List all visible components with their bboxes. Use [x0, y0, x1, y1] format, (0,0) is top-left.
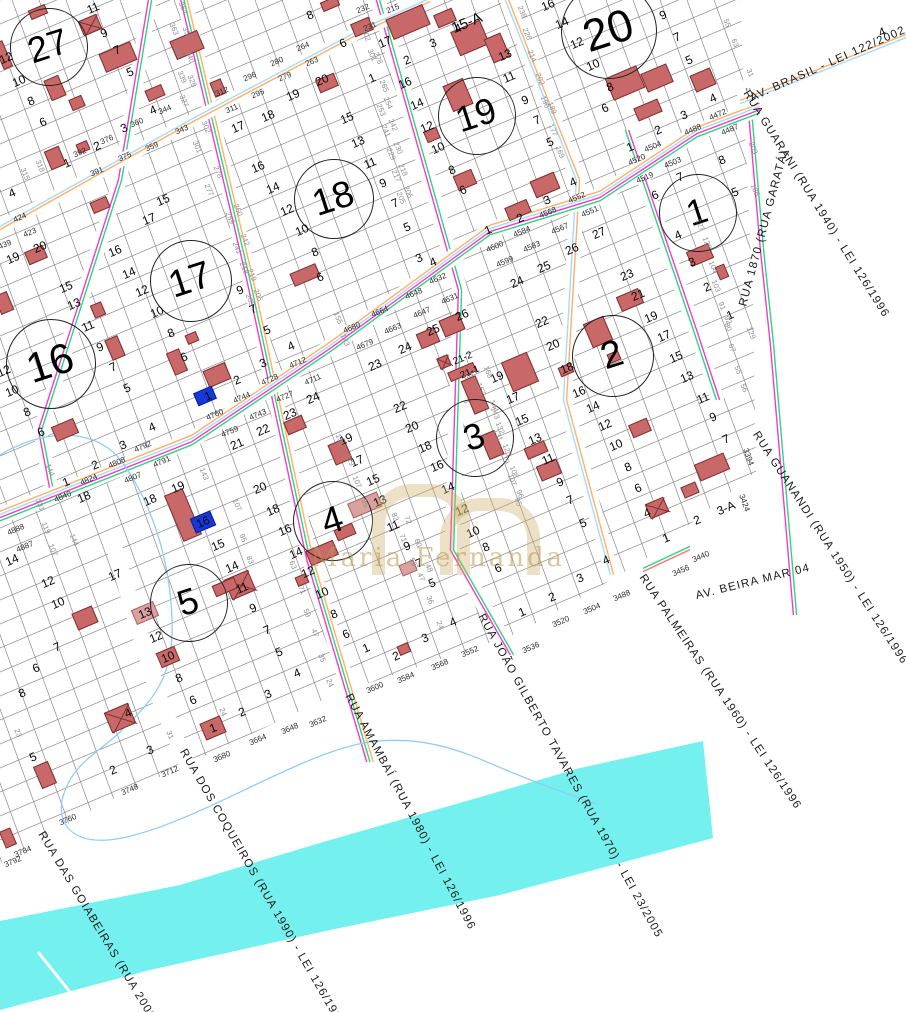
- address-number: 4663: [383, 322, 403, 336]
- lot-number: 16: [397, 75, 414, 91]
- chainage-number: 55: [733, 365, 743, 376]
- address-number: 264: [295, 41, 310, 54]
- lot-number: 4: [448, 615, 459, 629]
- chainage-number: 168: [482, 365, 494, 379]
- building: [68, 95, 86, 112]
- building: [680, 481, 699, 498]
- address-number: 3456: [671, 564, 691, 578]
- lot-number: 4: [147, 420, 158, 434]
- lot-number: 27: [591, 225, 608, 241]
- chainage-number: 104: [707, 260, 719, 274]
- address-number: 4632: [428, 272, 448, 286]
- lot-number: 20: [252, 480, 269, 496]
- chainage-number: 144: [68, 533, 80, 547]
- lot-number: 5: [125, 65, 136, 79]
- lot-number: 19: [5, 250, 22, 266]
- chainage-number: 129: [745, 326, 757, 340]
- lot-number: 12: [134, 283, 151, 299]
- chainage-number: 155: [332, 311, 344, 325]
- chainage-number: 83: [245, 555, 255, 566]
- lot-number: 7: [52, 640, 63, 654]
- building: [633, 98, 662, 121]
- address-number: 3394: [741, 447, 755, 466]
- address-number: 3440: [691, 550, 711, 564]
- building: [185, 331, 200, 345]
- building: [628, 418, 652, 439]
- lot-number: 6: [31, 661, 42, 675]
- lot-number: 23: [367, 357, 384, 373]
- lot-number: 11: [501, 69, 517, 85]
- address-number: 4664: [370, 305, 390, 319]
- chainage-number: 238: [516, 5, 528, 19]
- lot-number: 7: [721, 432, 732, 446]
- address-number: 392: [72, 147, 87, 160]
- lot-number: 21: [229, 436, 246, 452]
- address-number: 4584: [512, 225, 532, 239]
- address-number: 4824: [79, 473, 99, 487]
- lot-number: 6: [650, 188, 661, 202]
- lot-number: 2: [402, 53, 413, 67]
- lot-number: 2: [547, 590, 558, 604]
- lot-number: 8: [305, 8, 316, 22]
- lot-number: 22: [392, 399, 409, 415]
- chainage-number: 328: [186, 74, 198, 88]
- lot-number: 9: [99, 26, 110, 40]
- lot-number: 24: [509, 274, 526, 290]
- chainage-number: 302: [200, 120, 212, 134]
- lot-number: 14: [265, 180, 282, 196]
- address-number: 360: [129, 117, 144, 130]
- address-number: 439: [0, 239, 13, 252]
- lot-number: 7: [532, 113, 543, 127]
- street-label: RUA DOS COQUEIROS (RUA 1990) - LEI 126/1…: [177, 747, 347, 1012]
- lot-number: 17: [230, 119, 247, 135]
- lot-number: 6: [315, 270, 326, 284]
- lot-number: 8: [166, 326, 177, 340]
- lot-number: 17: [107, 567, 124, 583]
- address-number: 391: [89, 166, 104, 179]
- lot-number: 1: [361, 641, 372, 655]
- address-number: 311: [225, 103, 240, 115]
- address-number: 279: [277, 71, 292, 84]
- lot-number: 2: [237, 705, 248, 719]
- chainage-number: 144: [44, 463, 56, 477]
- lot-number: 23: [619, 267, 636, 283]
- address-number: 4519: [635, 171, 655, 185]
- lot-number: 17: [656, 328, 673, 344]
- crossed-building: [436, 354, 452, 370]
- chainage-number: 265: [378, 79, 390, 93]
- lot-number: 11: [85, 0, 101, 16]
- lot-number: 14: [121, 265, 138, 281]
- lot-number: 5: [274, 645, 285, 659]
- lot-number: 10: [430, 140, 447, 156]
- street-label: RUA DAS GOIABEIRAS (RUA 2000): [36, 829, 161, 1012]
- lot-number: 16: [540, 0, 557, 13]
- lot-number: 3: [258, 356, 269, 370]
- address-number: 295: [250, 88, 265, 101]
- address-number: 4887: [15, 540, 35, 554]
- building: [90, 301, 107, 319]
- lot-number: 15: [514, 412, 531, 428]
- address-number: 3600: [365, 681, 385, 695]
- building: [144, 84, 165, 102]
- lot-number: 3: [263, 687, 274, 701]
- lot-number: 9: [378, 176, 389, 190]
- building: [689, 67, 716, 92]
- address-number: 3648: [280, 722, 300, 736]
- building: [33, 761, 57, 789]
- address-number: 4552: [567, 191, 587, 205]
- chainage-number: 301: [191, 140, 203, 154]
- chainage-number: 95: [238, 533, 248, 544]
- address-number: 4728: [260, 373, 280, 387]
- address-number: 376: [99, 134, 114, 147]
- address-number: 4647: [412, 306, 432, 320]
- lot-number: 2: [653, 123, 664, 137]
- lot-number: 3: [679, 108, 690, 122]
- lot-number: 5: [578, 516, 589, 530]
- lot-number: 13: [679, 369, 696, 385]
- address-number: 423: [22, 227, 37, 240]
- chainage-number: 71: [297, 585, 307, 596]
- street-label: RUA JOÃO GILBERTO TAVARES (RUA 1970) - L…: [475, 612, 664, 940]
- lot-number: 7: [108, 360, 119, 374]
- chainage-number: 31: [745, 68, 755, 79]
- lot-number: 18: [265, 502, 282, 518]
- building: [694, 452, 730, 481]
- lot-number: 12: [40, 574, 57, 590]
- lot-number: 16: [250, 159, 267, 175]
- chainage-number: 23: [13, 728, 23, 739]
- lot-number: 4: [292, 666, 303, 680]
- chainage-number: 107: [231, 498, 243, 512]
- lot-number: 15: [668, 349, 685, 365]
- chainage-number: 59: [302, 608, 312, 619]
- address-number: 4711: [304, 373, 323, 387]
- lot-number: 17: [377, 34, 394, 50]
- address-number: 232: [355, 3, 370, 16]
- chainage-number: 278: [372, 51, 384, 65]
- address-number: 4760: [205, 408, 225, 422]
- lot-number: 8: [174, 671, 185, 685]
- chainage-number: 107: [47, 543, 59, 557]
- address-number: 4808: [107, 456, 127, 470]
- chainage-number: 131: [34, 498, 46, 512]
- address-number: 4583: [522, 240, 542, 254]
- lot-number: 6: [341, 627, 352, 641]
- lot-number: 8: [447, 163, 458, 177]
- lot-number: 17: [505, 390, 522, 406]
- street-label: RUA GUANANDI (RUA 1950) - LEI 126/1996: [750, 429, 906, 666]
- lot-number: 7: [565, 493, 576, 507]
- lot-number: 19: [643, 309, 660, 325]
- chainage-number: 315: [19, 167, 31, 181]
- lot-number: 13: [66, 296, 83, 312]
- lot-number: 4: [601, 553, 612, 567]
- lot-number: 8: [329, 607, 340, 621]
- address-number: 4599: [495, 255, 515, 269]
- lot-number: 5: [262, 323, 273, 337]
- chainage-number: 24: [435, 620, 445, 631]
- address-number: 424: [12, 212, 27, 225]
- address-number: 4727: [275, 390, 295, 404]
- lot-number: 4: [7, 186, 18, 200]
- address-number: 3520: [551, 615, 571, 629]
- building: [51, 418, 79, 442]
- address-number: 4472: [708, 108, 728, 122]
- building: [320, 0, 340, 12]
- lot-number: 15: [365, 472, 382, 488]
- lot-number: 17: [141, 211, 158, 227]
- lot-number: 5: [427, 576, 438, 590]
- address-number: 4567: [550, 222, 570, 236]
- street-label: RUA PALMEIRAS (RUA 1960) - LEI 126/1996: [637, 572, 804, 811]
- building: [202, 362, 231, 388]
- lot-number: 22: [534, 314, 551, 330]
- street-label: RUA AMAMBAÍ (RUA 1980) - LEI 126/1996: [342, 692, 477, 932]
- chainage-number: 67: [727, 343, 737, 354]
- street-label: AV. BRASIL - LEI 122/2002: [748, 24, 906, 104]
- address-number: 4743: [248, 408, 268, 422]
- chainage-number: 169: [554, 145, 566, 159]
- chainage-number: 202: [534, 72, 546, 86]
- chainage-number: 277: [203, 183, 215, 197]
- building: [104, 335, 125, 361]
- lot-number: 8: [22, 405, 33, 419]
- lot-number: 10: [50, 595, 67, 611]
- lot-number: 13: [350, 134, 367, 150]
- watermark-text: Maria Fernanda: [311, 543, 565, 573]
- address-number: 3552: [460, 645, 480, 659]
- chainage-number: 189: [546, 101, 558, 115]
- chainage-number: 363: [168, 22, 180, 36]
- building: [0, 291, 14, 315]
- lot-number: 14: [585, 399, 602, 415]
- lot-number: 5: [402, 220, 413, 234]
- address-number: 4807: [123, 471, 143, 485]
- address-number: 3488: [612, 589, 632, 603]
- chainage-number: 55: [722, 18, 732, 29]
- address-number: 4648: [404, 287, 424, 301]
- address-number: 4631: [440, 292, 460, 306]
- lot-number: 7: [672, 30, 683, 44]
- lot-number: 20: [545, 337, 562, 353]
- lot-number: 2: [90, 458, 101, 472]
- address-number: 4792: [133, 440, 153, 454]
- address-number: 4679: [355, 338, 375, 352]
- lot-number: 11: [695, 390, 711, 406]
- chainage-number: 278: [212, 165, 224, 179]
- lot-number: 6: [338, 36, 349, 50]
- address-number: 3792: [3, 855, 23, 869]
- building: [501, 352, 539, 392]
- chainage-number: 47: [310, 628, 320, 639]
- lot-number: 4: [286, 339, 297, 353]
- address-number: 4791: [152, 455, 172, 469]
- lot-number: 3: [414, 251, 425, 265]
- lot-number: 19: [285, 87, 302, 103]
- chainage-number: 24: [325, 678, 335, 689]
- address-number: 359: [144, 141, 159, 154]
- address-number: 3568: [430, 658, 450, 672]
- lot-number: 9: [520, 93, 531, 107]
- lot-number: 1: [367, 71, 378, 85]
- chainage-number: 35: [317, 653, 327, 664]
- lot-number: 20: [404, 419, 421, 435]
- chainage-number: 218: [238, 261, 250, 275]
- address-number: 3680: [212, 750, 232, 764]
- lot-number: 3: [420, 631, 431, 645]
- chainage-number: 56: [739, 383, 749, 394]
- lot-number: 9: [95, 340, 106, 354]
- chainage-number: 327: [178, 94, 190, 108]
- lot-number: 8: [310, 245, 321, 259]
- lot-number: 12: [279, 202, 296, 218]
- lot-number: 3: [428, 36, 439, 50]
- lot-number: 15: [58, 279, 75, 295]
- chainage-number: 364: [177, 1, 189, 15]
- building: [71, 605, 98, 630]
- lot-number: 3: [118, 438, 129, 452]
- address-number: 3748: [120, 783, 140, 797]
- lot-number: 3: [145, 743, 156, 757]
- lot-number: 18: [142, 492, 159, 508]
- lot-number: 8: [623, 460, 634, 474]
- lot-number: 9: [248, 601, 259, 615]
- lot-number: 9: [658, 8, 669, 22]
- lot-number: 8: [717, 153, 728, 167]
- address-number: 4840: [53, 490, 73, 504]
- lot-number: 5: [684, 53, 695, 67]
- street-label: RUA 1870 (RUA GARATÁ): [737, 148, 790, 307]
- chainage-number: 36: [425, 595, 435, 606]
- lot-number: 5: [122, 381, 133, 395]
- lot-number: 9: [555, 475, 566, 489]
- lot-number: 6: [38, 115, 49, 129]
- lot-number: 6: [36, 425, 47, 439]
- chainage-number: 63: [288, 560, 298, 571]
- address-number: 343: [174, 124, 189, 137]
- lot-number: 26: [564, 241, 581, 257]
- lot-number: 1: [661, 531, 672, 545]
- lot-number: 10: [608, 437, 625, 453]
- map-canvas[interactable]: 2717161819201234511975432168101286123442…: [0, 0, 906, 1012]
- address-number: 4488: [683, 123, 703, 137]
- lot-number: 12: [597, 417, 614, 433]
- lot-number: 2: [232, 373, 243, 387]
- lot-number: 5: [28, 750, 39, 764]
- lot-number: 3: [119, 121, 130, 135]
- building: [0, 827, 17, 848]
- chainage-number: 143: [198, 467, 210, 481]
- chainage-number: 143: [339, 333, 351, 347]
- address-number: 4744: [232, 391, 252, 405]
- lot-number: 3-A: [715, 499, 737, 517]
- chainage-number: 80: [723, 322, 733, 333]
- lot-number: 8: [17, 686, 28, 700]
- lot-number: 10: [314, 585, 331, 601]
- address-number: 4600: [485, 240, 505, 254]
- address-number: 4503: [663, 156, 683, 170]
- lot-number: 24: [397, 340, 414, 356]
- lot-number: 2: [108, 763, 119, 777]
- lot-number: 18: [417, 439, 434, 455]
- address-number: 263: [304, 56, 319, 69]
- street-label: AV. BEIRA MAR 04: [694, 562, 811, 602]
- address-number: 3760: [58, 813, 78, 827]
- address-number: 4504: [643, 140, 663, 154]
- lot-number: 2: [692, 513, 703, 527]
- lot-number: 16: [107, 243, 124, 259]
- address-number: 4487: [720, 123, 740, 137]
- lot-number: 3: [575, 571, 586, 585]
- lot-number: 11: [362, 155, 378, 171]
- address-number: 3424: [737, 493, 751, 512]
- lot-number: 4: [428, 255, 439, 269]
- lot-number: 14: [409, 96, 426, 112]
- lot-number: 4: [708, 91, 719, 105]
- lot-number: 1: [517, 605, 528, 619]
- chainage-number: 214: [526, 49, 538, 63]
- chainage-number: 226: [521, 27, 533, 41]
- address-number: 3584: [396, 671, 416, 685]
- address-number: 4712: [288, 356, 308, 370]
- chainage-number: 31: [165, 730, 175, 741]
- chainage-number: 119: [40, 521, 52, 535]
- chainage-number: 203: [747, 141, 759, 155]
- lot-number: 15: [339, 110, 356, 126]
- lot-number: 7: [262, 623, 273, 637]
- address-number: 3632: [308, 715, 328, 729]
- chainage-number: 24: [218, 707, 228, 718]
- lot-number: 22: [255, 422, 272, 438]
- lot-number: 16: [277, 522, 294, 538]
- lot-number: 4: [568, 175, 579, 189]
- lot-number: 6: [188, 693, 199, 707]
- chainage-number: 318: [34, 159, 46, 173]
- address-number: 375: [117, 151, 132, 164]
- lot-number: 18: [76, 489, 93, 505]
- lot-number: 1: [483, 223, 494, 237]
- chainage-number: 185: [749, 183, 761, 197]
- address-number: 280: [269, 56, 284, 69]
- building: [89, 196, 110, 214]
- building: [640, 63, 674, 92]
- lot-number: 9: [708, 410, 719, 424]
- address-number: 3712: [160, 765, 180, 779]
- address-number: 4568: [538, 206, 558, 220]
- lot-number: 15: [155, 192, 172, 208]
- address-number: 312: [214, 86, 229, 99]
- lot-number: 1: [625, 140, 636, 154]
- address-number: 344: [157, 104, 172, 117]
- lot-number: 25: [536, 259, 553, 275]
- chainage-number: 63: [730, 38, 740, 49]
- address-number: 296: [242, 71, 257, 84]
- lot-number: 3: [542, 193, 553, 207]
- lot-number: 1: [62, 156, 73, 170]
- address-number: 3536: [521, 641, 541, 655]
- address-number: 4520: [627, 153, 647, 167]
- lot-number: 1: [61, 475, 72, 489]
- address-number: 4888: [6, 523, 26, 537]
- lot-number: 6: [600, 101, 611, 115]
- address-number: 3664: [248, 733, 268, 747]
- lot-number: 24: [305, 390, 322, 406]
- lot-number: 18: [260, 108, 277, 124]
- lot-number: 15: [210, 537, 227, 553]
